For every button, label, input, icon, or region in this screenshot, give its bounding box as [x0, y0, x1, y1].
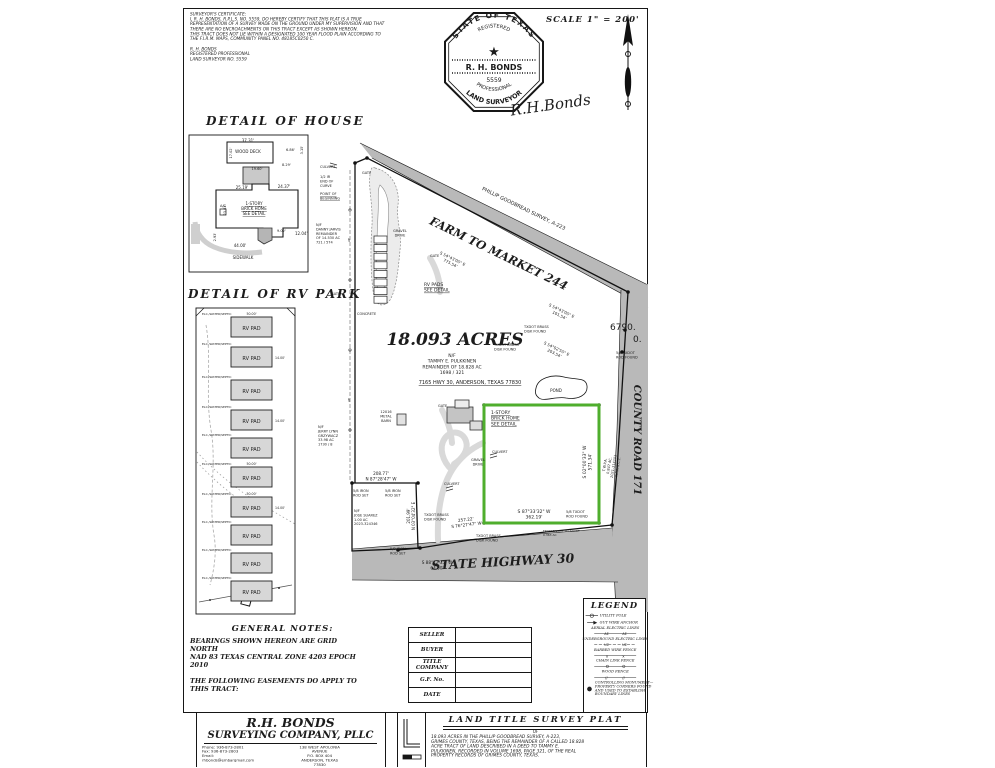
- info-table-row: DATE: [409, 688, 531, 702]
- legend-item: CONTROLLING MONUMENT—PROPERTY CORNERS FO…: [586, 681, 645, 697]
- address-line: ANDERSON, TEXAS 77830: [297, 758, 342, 767]
- rv-pad-label: ELC./WATER/SEPTIC: [202, 492, 232, 496]
- scale-label: SCALE 1" = 200': [546, 15, 641, 25]
- rv-pad: RV PADELC./WATER/SEPTIC14.00': [202, 405, 285, 430]
- rv-pad-label: ELC./WATER/SEPTIC: [202, 548, 232, 552]
- svg-text://: //: [605, 675, 608, 680]
- rv-pad: RV PADELC./WATER/SEPTIC50.00': [202, 312, 272, 337]
- info-table-label: SELLER: [409, 628, 456, 642]
- general-note-line: NAD 83 TEXAS CENTRAL ZONE 4203 EPOCH: [190, 653, 375, 661]
- plat-label: 18.093 ACRES: [386, 330, 523, 350]
- plat-label: 201.99'N 03°04'32" E: [406, 501, 416, 530]
- legend: LEGEND UTILITY POLEGUY WIRE ANCHORAERIAL…: [583, 598, 646, 713]
- svg-text:AE: AE: [622, 632, 627, 636]
- svg-text:UE: UE: [604, 643, 609, 647]
- barb-symbol-icon: xx: [594, 652, 636, 658]
- gravel-driveways: [430, 258, 483, 540]
- plat-title-block: LAND TITLE SURVEY PLAT OF 18.093 ACRES I…: [425, 713, 646, 767]
- company-contact: Phone: 936-873-2801Fax: 936-873-2803Emai…: [202, 745, 254, 767]
- plat-label: TXDOT BRASSDISK FOUND: [423, 513, 450, 521]
- legend-item: UNDERGROUND ELECTRIC LINESUEUE: [586, 638, 645, 648]
- ae-symbol-icon: AEAE: [594, 631, 636, 637]
- company-rule: [204, 743, 377, 744]
- rv-pad: RV PADELC./WATER/SEPTIC: [202, 548, 272, 573]
- rv-pad-label: ELC./WATER/SEPTIC: [202, 576, 232, 580]
- plat-label: 5/8 IRONROD SET: [385, 489, 401, 497]
- legend-item: WOOD FENCE////: [586, 670, 645, 680]
- svg-text:AE: AE: [604, 632, 609, 636]
- plat-label: S 54°02'55" E203.54': [541, 340, 571, 361]
- plat-label: POND: [550, 388, 562, 393]
- plat-barn: [397, 414, 406, 425]
- plat-label: 1/2 IREND OFCURVE: [320, 175, 333, 188]
- plat-description-line: PROPERTY RECORDS OF GRIMES COUNTY, TEXAS…: [431, 753, 642, 758]
- svg-text://: //: [622, 675, 625, 680]
- plat-label: 9.02': [277, 229, 286, 233]
- plat-label: POINT OFBEGINNING: [320, 192, 340, 200]
- survey-plat-page: #svg-root text{font-family:"DejaVu Sans"…: [0, 0, 995, 768]
- svg-text:x: x: [622, 653, 625, 658]
- ue-symbol-icon: UEUE: [594, 641, 636, 647]
- legend-item-label: UTILITY POLE: [600, 614, 627, 618]
- plat-label: 2.93': [213, 233, 217, 242]
- general-notes: GENERAL NOTES: BEARINGS SHOWN HEREON ARE…: [190, 624, 375, 693]
- plat-label: N/FTAMMY E. PULKKINENREMAINDER OF 18.828…: [422, 353, 481, 376]
- rv-pad-label: RV PAD: [242, 447, 260, 453]
- info-table-row: G.F. No.: [409, 673, 531, 688]
- plat-label: GRAVELDRIVE: [393, 229, 407, 237]
- plat-label: 25.19': [236, 185, 249, 190]
- rv-pads: RV PADELC./WATER/SEPTIC50.00'RV PADELC./…: [202, 312, 285, 601]
- plat-label: N/FJOSE SUAREZ1.00 AC2023-324346: [353, 509, 378, 526]
- detail-of-house-title: DETAIL OF HOUSE: [206, 114, 365, 128]
- plat-label: 19.60': [252, 167, 263, 171]
- plat-label: S 54°43'05" E775.54': [437, 250, 467, 271]
- general-note-line: THIS TRACT:: [190, 685, 375, 693]
- plat-label: 5/8 IRONROD SET: [353, 489, 369, 497]
- rv-pad-label: RV PAD: [242, 389, 260, 395]
- rv-pad-label: 50.00': [246, 492, 256, 496]
- plat-label: RV PADSSEE DETAIL: [424, 282, 450, 294]
- rv-pad-label: 14.00': [275, 419, 285, 423]
- plat-label: 44.00': [234, 243, 247, 248]
- info-table-label: BUYER: [409, 643, 456, 657]
- certificate-signoff-line: LAND SURVEYOR NO. 5559: [190, 57, 394, 62]
- rv-pad-label: 14.00': [275, 506, 285, 510]
- road-fm244: [360, 143, 648, 308]
- rv-pad-label: RV PAD: [242, 534, 260, 540]
- plat-label: GRAVELDRIVE: [471, 458, 485, 466]
- info-table-row: BUYER: [409, 643, 531, 658]
- plat-label: 12.04': [295, 231, 308, 236]
- detail-of-rv-park-title: DETAIL OF RV PARK: [188, 287, 361, 301]
- legend-title: LEGEND: [584, 601, 645, 611]
- plat-label: A/C: [220, 204, 227, 208]
- legend-item: UTILITY POLE: [586, 613, 645, 619]
- rv-mini-pad: [374, 253, 387, 260]
- title-block: R.H. BONDS SURVEYING COMPANY, PLLC Phone…: [183, 712, 648, 767]
- svg-text:UE: UE: [622, 643, 627, 647]
- plat-label: 5/8 IRONROD SET: [390, 547, 406, 555]
- info-table-value: [456, 628, 531, 642]
- rv-mini-pad: [374, 270, 387, 277]
- rv-pad-label: RV PAD: [242, 506, 260, 512]
- title-block-divider: [385, 713, 386, 767]
- plat-label: S 54°43'05" E101.54': [546, 302, 576, 323]
- plat-label: S 02°00'33" W571.34': [582, 445, 594, 478]
- plat-label: N/FJERRY LYNNGRZYWACZ33.98 AC1730 / 8: [317, 425, 339, 447]
- rv-pad: RV PADELC./WATER/SEPTIC: [202, 576, 272, 601]
- plat-label: WOOD DECK: [235, 149, 261, 154]
- plat-label: 6.86': [286, 148, 295, 152]
- rv-pad-label: 50.00': [246, 462, 256, 466]
- plat-label: 5/8 TXDOTROD FOUND: [616, 351, 638, 359]
- certificate-lines: SURVEYOR'S CERTIFICATE:I, R. H. BONDS, R…: [190, 12, 394, 42]
- address-line: 138 WEST APOLONIA AVENUE: [297, 745, 342, 754]
- general-note-line: NORTH: [190, 645, 375, 653]
- rv-pad-label: RV PAD: [242, 419, 260, 425]
- corner-detail-icon: [398, 713, 425, 767]
- pole-symbol-icon: [586, 613, 598, 619]
- contact-line: Email: rhbonds@embarqmail.com: [202, 754, 254, 763]
- info-table-label: TITLECOMPANY: [409, 658, 456, 672]
- legend-items: UTILITY POLEGUY WIRE ANCHORAERIAL ELECTR…: [584, 611, 646, 698]
- plat-label: TXDOT BRASSDISK FOUND: [523, 325, 550, 333]
- info-table-value: [456, 673, 531, 687]
- plat-description: 18.093 ACRES IN THE PHILLIP GOODBREAD SU…: [431, 735, 642, 759]
- svg-text:x: x: [606, 653, 609, 658]
- general-note-line: [190, 669, 375, 677]
- rv-mini-pad: [374, 288, 387, 295]
- transaction-info-table: SELLERBUYERTITLECOMPANYG.F. No.DATE: [408, 627, 532, 703]
- plat-label: COUNTY ROAD 171: [631, 385, 642, 495]
- company-block: R.H. BONDS SURVEYING COMPANY, PLLC Phone…: [196, 713, 385, 767]
- general-note-line: THE FOLLOWING EASEMENTS DO APPLY TO: [190, 677, 375, 685]
- plat-label: CULVERT: [444, 482, 460, 486]
- plat-label: 12X16METALBARN: [380, 410, 391, 423]
- plat-label: 3.15': [300, 146, 304, 155]
- legend-item: AERIAL ELECTRIC LINESAEAE: [586, 627, 645, 637]
- rv-pad-label: RV PAD: [242, 562, 260, 568]
- plat-title: LAND TITLE SURVEY PLAT: [425, 715, 646, 725]
- plat-label: 5/8 TXDOTROD FOUND: [566, 510, 588, 518]
- plat-label: AE: [347, 398, 351, 402]
- legend-item: GUY WIRE ANCHOR: [586, 620, 645, 626]
- rv-pad-label: RV PAD: [242, 590, 260, 596]
- rv-pad-label: RV PAD: [242, 356, 260, 362]
- title-block-divider: [646, 713, 647, 767]
- plat-label: 208.77'N 87°28'47" W: [365, 471, 396, 481]
- plat-house: [447, 400, 482, 430]
- legend-item: CHAIN LINK FENCE: [586, 659, 645, 669]
- rv-pad-label: ELC./WATER/SEPTIC: [202, 342, 232, 346]
- rv-pad: RV PADELC./WATER/SEPTIC50.00'14.00': [202, 492, 285, 517]
- north-arrow-icon: [623, 14, 633, 110]
- certificate-signoff: R. H. BONDSREGISTERED PROFESSIONALLAND S…: [190, 47, 394, 62]
- rv-pad-label: 50.00': [246, 312, 256, 316]
- rv-pad-label: ELC./WATER/SEPTIC: [202, 462, 232, 466]
- rv-pad-label: RV PAD: [242, 476, 260, 482]
- general-notes-title: GENERAL NOTES:: [190, 624, 375, 634]
- plat-of: OF: [425, 730, 646, 734]
- rv-pad-label: ELC./WATER/SEPTIC: [202, 375, 232, 379]
- company-address: 138 WEST APOLONIA AVENUEP.O. BOX 404ANDE…: [297, 745, 342, 767]
- info-table-label: DATE: [409, 688, 456, 702]
- general-note-line: 2010: [190, 661, 375, 669]
- company-name: R.H. BONDS: [196, 715, 385, 730]
- rv-pad-label: ELC./WATER/SEPTIC: [202, 312, 232, 316]
- plat-label: CONCRETE: [357, 312, 376, 316]
- plat-label: S 87°33'32" W362.19': [518, 509, 551, 521]
- rv-pad: RV PADELC./WATER/SEPTIC50.00': [202, 462, 272, 487]
- rv-pad-label: ELC./WATER/SEPTIC: [202, 405, 232, 409]
- plat-label: 0.: [633, 335, 642, 345]
- rv-pad: RV PADELC./WATER/SEPTIC14.00': [202, 342, 285, 367]
- general-notes-lines: BEARINGS SHOWN HEREON ARE GRIDNORTHNAD 8…: [190, 637, 375, 693]
- rv-pad-label: ELC./WATER/SEPTIC: [202, 433, 232, 437]
- plat-label: 24.37': [278, 184, 291, 189]
- plat-label: CULVERT: [320, 165, 336, 169]
- wood-symbol-icon: ////: [594, 674, 636, 680]
- rv-mini-pad: [374, 245, 387, 252]
- info-table-value: [456, 658, 531, 672]
- plat-label: 7165 HWY 30, ANDERSON, TEXAS 77830: [419, 380, 522, 386]
- plat-label: CULVERT: [492, 450, 508, 454]
- info-table-value: [456, 688, 531, 702]
- plat-label: SIDEWALK: [233, 255, 254, 260]
- plat-label: TXDOT BRASSDISK FOUND: [475, 534, 502, 542]
- plat-label: N/FDANNY JARVISREMAINDEROF 14.530 AC721 …: [316, 223, 342, 245]
- plat-label: GATE: [438, 404, 447, 408]
- rv-pad-label: 14.00': [275, 356, 285, 360]
- legend-item-label: GUY WIRE ANCHOR: [600, 621, 638, 625]
- rv-mini-pad: [374, 296, 387, 303]
- rv-mini-pad: [374, 262, 387, 269]
- rv-mini-pad: [374, 279, 387, 286]
- plat-label: 1-STORYBRICK HOMESEE DETAIL: [491, 410, 520, 427]
- guy-symbol-icon: [586, 620, 598, 626]
- rv-pad-label: ELC./WATER/SEPTIC: [202, 520, 232, 524]
- info-table-value: [456, 643, 531, 657]
- info-table-label: G.F. No.: [409, 673, 456, 687]
- plat-label: 8.29': [282, 163, 291, 167]
- general-note-line: BEARINGS SHOWN HEREON ARE GRID: [190, 637, 375, 645]
- legend-item: BARBED WIRE FENCExx: [586, 648, 645, 658]
- plat-label: 17.02': [229, 147, 233, 158]
- surveyor-certificate: SURVEYOR'S CERTIFICATE:I, R. H. BONDS, R…: [190, 12, 540, 95]
- mon-symbol-icon: [586, 685, 594, 693]
- plat-label: 6790.: [610, 323, 636, 333]
- rv-pad-label: RV PAD: [242, 326, 260, 332]
- info-table-row: SELLER: [409, 628, 531, 643]
- info-table-row: TITLECOMPANY: [409, 658, 531, 673]
- certificate-line: THE F.I.R.M. MAPS, COMMUNITY PANEL NO. 4…: [190, 37, 394, 42]
- plat-label: 37.31': [242, 138, 255, 143]
- rv-mini-pad: [374, 236, 387, 243]
- plat-label: GATE: [430, 254, 439, 258]
- chain-symbol-icon: [594, 663, 636, 669]
- company-name-2: SURVEYING COMPANY, PLLC: [196, 730, 385, 741]
- plat-label: 257.22'S 76°27'47" W: [450, 515, 482, 529]
- rv-pad: RV PADELC./WATER/SEPTIC: [202, 375, 272, 400]
- legend-item-label: CONTROLLING MONUMENT—PROPERTY CORNERS FO…: [595, 681, 653, 697]
- rv-pad: RV PADELC./WATER/SEPTIC: [202, 520, 272, 545]
- plat-label: AE: [347, 238, 351, 242]
- plat-label: GATE: [362, 171, 371, 175]
